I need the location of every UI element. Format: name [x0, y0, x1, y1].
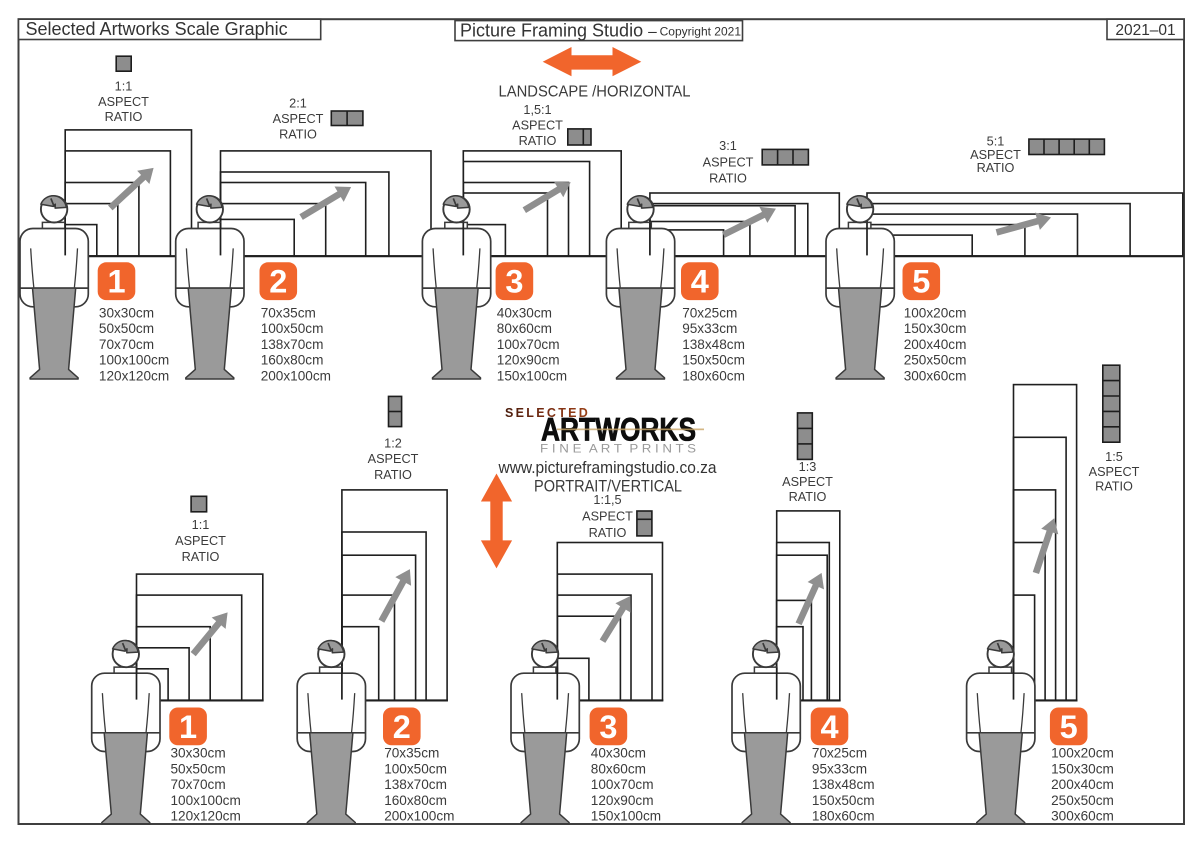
svg-text:RATIO: RATIO: [589, 526, 627, 540]
svg-text:5:1: 5:1: [987, 135, 1005, 149]
svg-text:50x50cm: 50x50cm: [171, 761, 226, 776]
svg-text:70x70cm: 70x70cm: [171, 777, 226, 792]
svg-text:2021–01: 2021–01: [1115, 22, 1175, 39]
svg-text:100x20cm: 100x20cm: [904, 305, 967, 320]
svg-text:RATIO: RATIO: [709, 172, 747, 186]
svg-text:ASPECT: ASPECT: [512, 119, 563, 133]
svg-text:100x50cm: 100x50cm: [384, 761, 447, 776]
svg-text:RATIO: RATIO: [105, 110, 143, 124]
svg-text:70x25cm: 70x25cm: [682, 305, 737, 320]
svg-text:200x100cm: 200x100cm: [384, 809, 454, 824]
svg-text:RATIO: RATIO: [182, 550, 220, 564]
svg-text:120x120cm: 120x120cm: [99, 369, 169, 384]
svg-text:2:1: 2:1: [289, 97, 307, 111]
svg-text:1: 1: [179, 709, 197, 745]
svg-text:100x70cm: 100x70cm: [591, 777, 654, 792]
svg-text:100x70cm: 100x70cm: [497, 337, 560, 352]
svg-text:ASPECT: ASPECT: [703, 155, 754, 169]
svg-text:70x35cm: 70x35cm: [384, 746, 439, 761]
svg-text:RATIO: RATIO: [1095, 480, 1133, 494]
svg-text:RATIO: RATIO: [374, 468, 412, 482]
svg-text:150x100cm: 150x100cm: [497, 369, 567, 384]
svg-text:95x33cm: 95x33cm: [682, 321, 737, 336]
svg-text:ASPECT: ASPECT: [970, 148, 1021, 162]
svg-text:5: 5: [1060, 709, 1078, 745]
svg-text:ASPECT: ASPECT: [273, 112, 324, 126]
svg-text:138x70cm: 138x70cm: [384, 777, 447, 792]
svg-text:160x80cm: 160x80cm: [384, 793, 447, 808]
svg-text:120x90cm: 120x90cm: [591, 793, 654, 808]
svg-text:40x30cm: 40x30cm: [497, 305, 552, 320]
svg-text:120x90cm: 120x90cm: [497, 353, 560, 368]
svg-text:70x35cm: 70x35cm: [261, 305, 316, 320]
svg-text:100x50cm: 100x50cm: [261, 321, 324, 336]
svg-text:3: 3: [505, 264, 523, 300]
svg-text:1:1,5: 1:1,5: [593, 493, 621, 507]
svg-text:150x50cm: 150x50cm: [682, 353, 745, 368]
svg-text:5: 5: [912, 264, 930, 300]
svg-text:Picture Framing Studio –: Picture Framing Studio –: [460, 20, 657, 40]
svg-text:150x30cm: 150x30cm: [904, 321, 967, 336]
svg-text:250x50cm: 250x50cm: [1051, 793, 1114, 808]
svg-text:1,5:1: 1,5:1: [523, 103, 551, 117]
svg-text:70x70cm: 70x70cm: [99, 337, 154, 352]
svg-text:200x40cm: 200x40cm: [904, 337, 967, 352]
svg-text:4: 4: [691, 264, 709, 300]
svg-text:RATIO: RATIO: [789, 490, 827, 504]
svg-text:138x70cm: 138x70cm: [261, 337, 324, 352]
svg-text:4: 4: [820, 709, 838, 745]
svg-text:100x100cm: 100x100cm: [99, 353, 169, 368]
svg-text:ASPECT: ASPECT: [175, 534, 226, 548]
svg-text:150x50cm: 150x50cm: [812, 793, 875, 808]
svg-text:Copyright 2021: Copyright 2021: [660, 24, 742, 38]
svg-text:150x100cm: 150x100cm: [591, 809, 661, 824]
svg-text:ASPECT: ASPECT: [98, 95, 149, 109]
svg-text:138x48cm: 138x48cm: [812, 777, 875, 792]
svg-text:70x25cm: 70x25cm: [812, 746, 867, 761]
svg-text:3: 3: [599, 709, 617, 745]
svg-text:50x50cm: 50x50cm: [99, 321, 154, 336]
svg-text:1:3: 1:3: [799, 460, 817, 474]
svg-text:100x20cm: 100x20cm: [1051, 746, 1114, 761]
svg-text:160x80cm: 160x80cm: [261, 353, 324, 368]
svg-text:30x30cm: 30x30cm: [171, 746, 226, 761]
svg-text:300x60cm: 300x60cm: [1051, 809, 1114, 824]
svg-text:Selected Artworks Scale Graphi: Selected Artworks Scale Graphic: [26, 19, 288, 39]
svg-text:100x100cm: 100x100cm: [171, 793, 241, 808]
svg-text:200x40cm: 200x40cm: [1051, 777, 1114, 792]
svg-text:1:1: 1:1: [115, 80, 133, 94]
svg-text:138x48cm: 138x48cm: [682, 337, 745, 352]
svg-text:3:1: 3:1: [719, 139, 737, 153]
svg-text:ASPECT: ASPECT: [782, 475, 833, 489]
svg-text:180x60cm: 180x60cm: [812, 809, 875, 824]
svg-text:LANDSCAPE /HORIZONTAL: LANDSCAPE /HORIZONTAL: [499, 83, 691, 100]
svg-text:120x120cm: 120x120cm: [171, 809, 241, 824]
svg-text:300x60cm: 300x60cm: [904, 369, 967, 384]
svg-text:1:1: 1:1: [192, 518, 210, 532]
svg-text:F I N E A R T P R I N T S: F I N E A R T P R I N T S: [540, 444, 696, 456]
svg-text:www.pictureframingstudio.co.za: www.pictureframingstudio.co.za: [498, 458, 717, 477]
svg-text:150x30cm: 150x30cm: [1051, 761, 1114, 776]
svg-text:RATIO: RATIO: [519, 134, 557, 148]
svg-text:RATIO: RATIO: [977, 161, 1015, 175]
svg-text:40x30cm: 40x30cm: [591, 746, 646, 761]
svg-text:ASPECT: ASPECT: [582, 509, 633, 523]
svg-text:1:2: 1:2: [384, 437, 402, 451]
svg-text:250x50cm: 250x50cm: [904, 353, 967, 368]
svg-text:RATIO: RATIO: [279, 128, 317, 142]
svg-text:30x30cm: 30x30cm: [99, 305, 154, 320]
svg-text:ASPECT: ASPECT: [1089, 465, 1140, 479]
svg-text:ASPECT: ASPECT: [368, 452, 419, 466]
svg-text:1: 1: [107, 264, 125, 300]
svg-text:180x60cm: 180x60cm: [682, 369, 745, 384]
svg-text:80x60cm: 80x60cm: [497, 321, 552, 336]
svg-text:80x60cm: 80x60cm: [591, 761, 646, 776]
svg-text:200x100cm: 200x100cm: [261, 369, 331, 384]
svg-text:95x33cm: 95x33cm: [812, 761, 867, 776]
svg-text:2: 2: [393, 709, 411, 745]
svg-text:2: 2: [269, 264, 287, 300]
svg-text:1:5: 1:5: [1105, 450, 1123, 464]
